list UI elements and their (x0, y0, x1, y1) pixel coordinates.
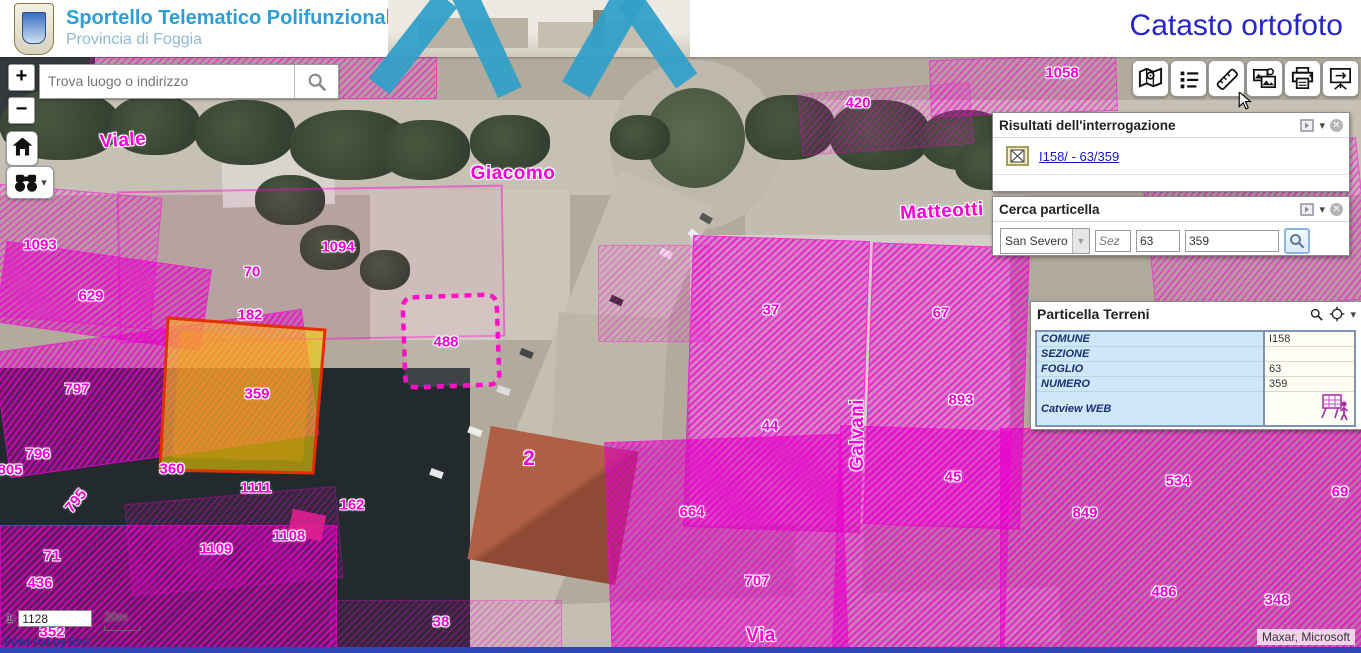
map-toolbar (1132, 60, 1359, 97)
images-icon (1251, 65, 1278, 92)
powered-by-text: Powered by Esri (4, 636, 90, 648)
geocoder-searchbar (39, 64, 339, 99)
result-item-icon (1006, 146, 1029, 166)
measure-button[interactable] (1208, 60, 1245, 97)
results-panel: Risultati dell'interrogazione ▾ ✕ I158/ … (992, 112, 1350, 192)
cadastral-hatch (832, 425, 1012, 653)
attr-value (1264, 347, 1355, 362)
portal-subtitle: Provincia di Foggia (66, 31, 202, 49)
cadastral-hatch (330, 600, 562, 653)
attr-value: I158 (1264, 331, 1355, 347)
screen-icon (1327, 65, 1354, 92)
numero-input[interactable] (1185, 230, 1279, 252)
scale-prefix: 1: (6, 613, 15, 625)
screen-view-button[interactable] (1322, 60, 1359, 97)
parcel-search-button[interactable] (1284, 228, 1310, 254)
results-panel-header: Risultati dell'interrogazione ▾ ✕ (993, 113, 1349, 138)
catview-web-cell (1264, 392, 1355, 427)
binoculars-icon (13, 172, 39, 194)
tree (110, 95, 200, 155)
search-button[interactable] (294, 65, 338, 98)
scalebar: 20m (104, 610, 140, 631)
basemap-button[interactable] (1132, 60, 1169, 97)
tree (610, 115, 670, 160)
scale-input[interactable] (18, 610, 92, 627)
catasto-app: VialeGiacomoMatteottiGalvaniVia105842010… (0, 0, 1361, 653)
zoom-out-button[interactable]: − (8, 97, 35, 124)
close-icon[interactable]: ✕ (1330, 119, 1343, 132)
esri-footer-strip (0, 647, 1361, 653)
foglio-input[interactable] (1136, 230, 1180, 252)
page-title: Catasto ortofoto (1130, 9, 1343, 43)
catview-web-icon[interactable] (1318, 392, 1350, 422)
cadastral-hatch (798, 82, 974, 156)
search-parcel-form: San Severo ▼ (993, 222, 1349, 254)
print-button[interactable] (1284, 60, 1321, 97)
tree (470, 115, 550, 170)
search-input[interactable] (40, 65, 294, 96)
map-icon (1137, 65, 1164, 92)
car (519, 348, 534, 359)
chevron-down-icon: ▼ (1072, 229, 1089, 253)
find-tool-button[interactable]: ▾ (6, 166, 54, 199)
collapse-caret-icon[interactable]: ▾ (1319, 119, 1325, 132)
image-gallery-button[interactable] (1246, 60, 1283, 97)
map-attribution: Maxar, Microsoft (1257, 629, 1355, 645)
comune-select-value: San Severo (1001, 234, 1072, 248)
zoom-in-button[interactable]: + (8, 64, 35, 91)
print-icon (1289, 65, 1316, 92)
table-row: COMUNE I158 (1036, 331, 1355, 347)
portal-title: Sportello Telematico Polifunzionale (66, 7, 402, 30)
chevron-down-icon: ▾ (41, 176, 47, 189)
close-icon[interactable]: ✕ (1330, 203, 1343, 216)
attr-label: SEZIONE (1036, 347, 1264, 362)
parcel-attributes-table: COMUNE I158 SEZIONE FOGLIO 63 NUMERO 359… (1035, 330, 1356, 427)
attr-label: Catview WEB (1036, 392, 1264, 427)
attr-label: COMUNE (1036, 331, 1264, 347)
result-item: I158/ - 63/359 (993, 138, 1349, 175)
legend-list-icon (1176, 66, 1202, 92)
sezione-input[interactable] (1095, 230, 1131, 252)
car (496, 385, 511, 396)
table-row: SEZIONE (1036, 347, 1355, 362)
collapse-caret-icon[interactable]: ▾ (1319, 203, 1325, 216)
comune-select[interactable]: San Severo ▼ (1000, 228, 1090, 254)
dock-icon[interactable] (1300, 119, 1314, 132)
parcel-info-panel: Particella Terreni ▾ COMUNE I158 (1030, 301, 1361, 430)
cadastral-hatch (1000, 428, 1361, 653)
dock-icon[interactable] (1300, 203, 1314, 216)
home-icon (11, 135, 34, 158)
provincia-coat-of-arms (14, 3, 54, 55)
scalebar-line (104, 626, 140, 631)
collapse-caret-icon[interactable]: ▾ (1350, 308, 1356, 321)
search-icon (1288, 232, 1306, 250)
scalebar-label: 20m (104, 610, 127, 624)
ruler-icon (1213, 65, 1241, 93)
scale-widget: 1: (6, 610, 92, 627)
cadastral-hatch (604, 434, 848, 653)
tree (195, 100, 295, 165)
result-link[interactable]: I158/ - 63/359 (1039, 149, 1119, 164)
table-row: Catview WEB (1036, 392, 1355, 427)
attr-value: 63 (1264, 362, 1355, 377)
table-row: NUMERO 359 (1036, 377, 1355, 392)
tree (380, 120, 470, 180)
cadastral-hatch (124, 486, 343, 596)
table-row: FOGLIO 63 (1036, 362, 1355, 377)
search-parcel-title: Cerca particella (999, 202, 1300, 217)
header-bar: Sportello Telematico Polifunzionale Prov… (0, 0, 1361, 57)
attr-label: FOGLIO (1036, 362, 1264, 377)
parcel-info-header: Particella Terreni ▾ (1031, 302, 1361, 326)
attr-label: NUMERO (1036, 377, 1264, 392)
crosshair-icon[interactable] (1329, 306, 1345, 322)
home-extent-button[interactable] (6, 131, 38, 166)
search-parcel-header: Cerca particella ▾ ✕ (993, 197, 1349, 222)
results-panel-title: Risultati dell'interrogazione (999, 118, 1300, 133)
legend-button[interactable] (1170, 60, 1207, 97)
attr-value: 359 (1264, 377, 1355, 392)
search-parcel-panel: Cerca particella ▾ ✕ San Severo ▼ (992, 196, 1350, 256)
parcel-info-title: Particella Terreni (1037, 306, 1309, 322)
zoom-to-icon[interactable] (1309, 307, 1324, 322)
search-icon (306, 71, 328, 93)
